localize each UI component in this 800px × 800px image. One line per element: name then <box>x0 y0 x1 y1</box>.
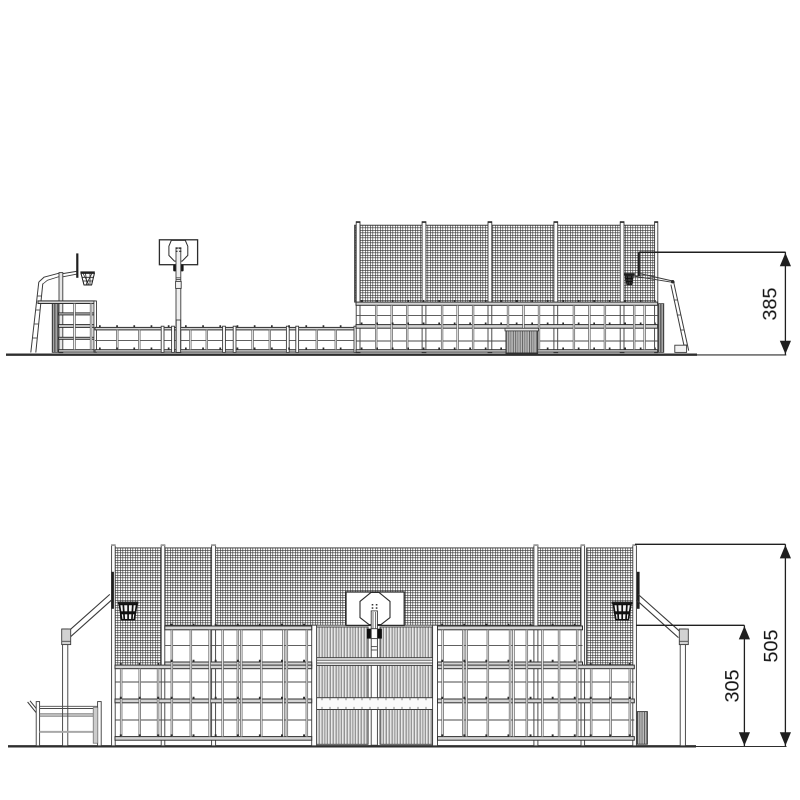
svg-text:305: 305 <box>722 669 744 702</box>
svg-text:385: 385 <box>759 287 781 320</box>
svg-text:505: 505 <box>760 629 782 662</box>
